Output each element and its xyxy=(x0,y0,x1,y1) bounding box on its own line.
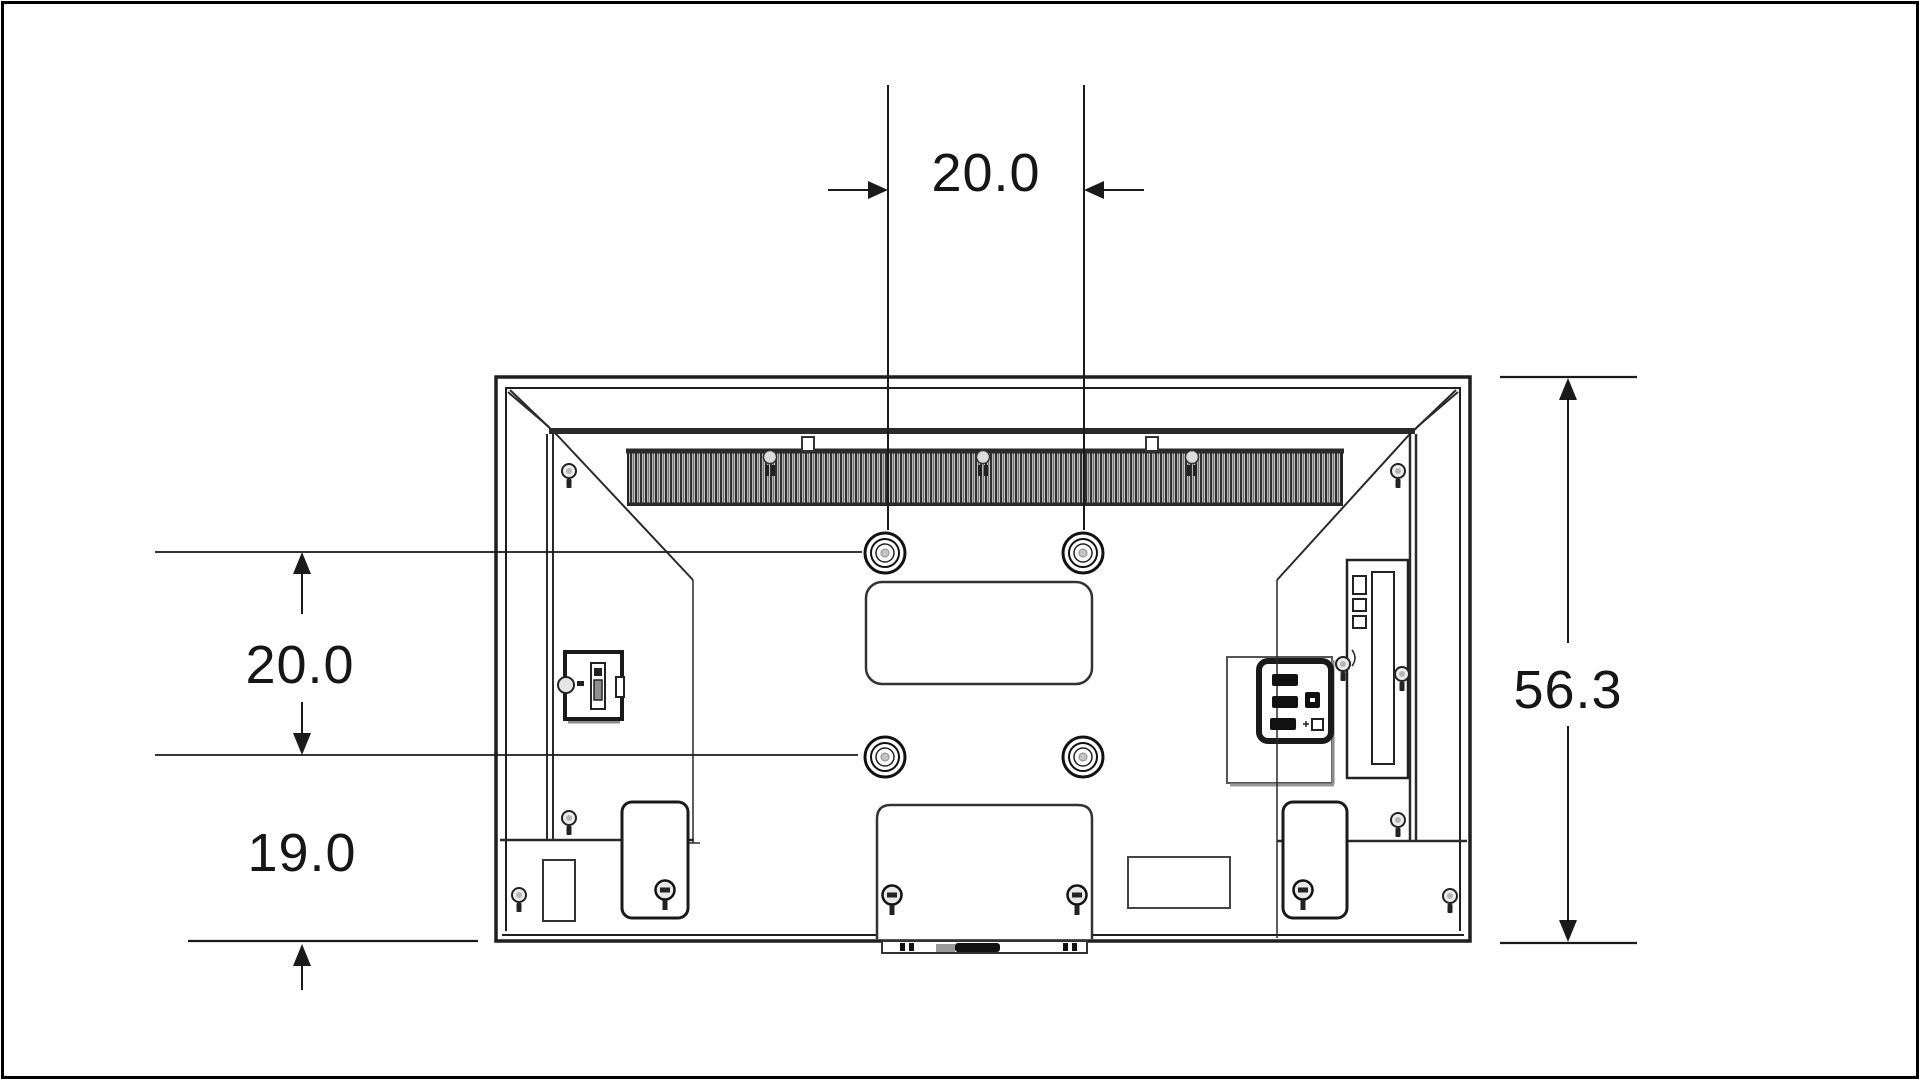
dim-label-top-hole-spacing: 20.0 xyxy=(896,146,1076,200)
vesa-hole-top-left xyxy=(865,533,905,573)
label-plate xyxy=(543,860,575,921)
grille-tab xyxy=(802,437,814,451)
tv-mount-dimension-diagram: 20.0 20.0 19.0 56.3 xyxy=(0,0,1920,1080)
vesa-hole-top-right xyxy=(1063,533,1103,573)
side-port-icon xyxy=(1353,616,1366,628)
vesa-hole-bottom-left xyxy=(865,737,905,777)
side-port-icon xyxy=(1353,599,1366,611)
stand-leg-pocket xyxy=(1283,802,1347,918)
vesa-hole-bottom-right xyxy=(1063,737,1103,777)
thumb-screw-icon xyxy=(558,677,574,693)
dim-label-overall-height: 56.3 xyxy=(1478,663,1658,717)
grille-tab xyxy=(1146,437,1158,451)
side-port-icon xyxy=(1353,576,1366,594)
stand-mount xyxy=(877,805,1092,953)
hdmi-port-icon xyxy=(1272,696,1298,708)
vesa-recess xyxy=(866,582,1092,684)
hdmi-port-icon xyxy=(1272,674,1298,686)
dim-label-left-hole-spacing: 20.0 xyxy=(210,638,390,692)
av-port-icon xyxy=(1270,718,1296,730)
label-plate xyxy=(1128,857,1230,908)
dim-label-bottom-offset: 19.0 xyxy=(212,826,392,880)
stand-leg-pocket xyxy=(622,802,688,918)
speaker-grille xyxy=(626,437,1344,505)
left-connector-panel xyxy=(558,652,624,722)
